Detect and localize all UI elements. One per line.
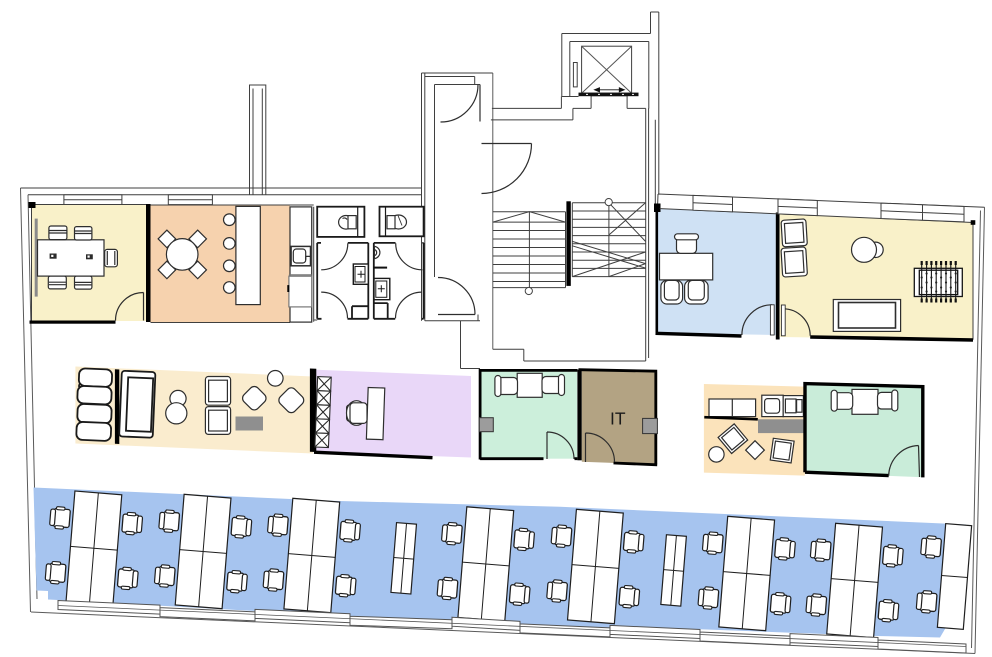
svg-text:IT: IT — [610, 409, 626, 429]
